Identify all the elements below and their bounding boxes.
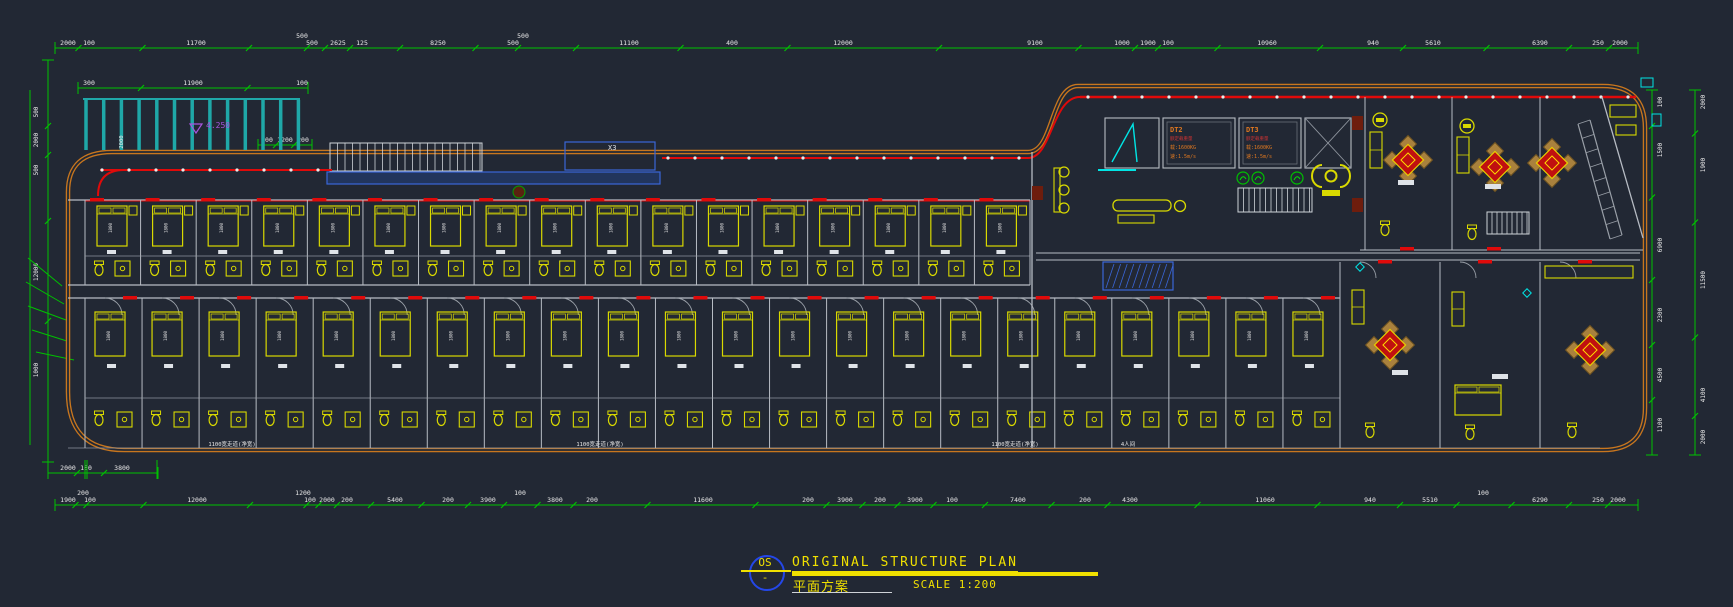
- svg-text:1800: 1800: [791, 330, 796, 341]
- svg-text:5510: 5510: [1422, 496, 1438, 504]
- svg-text:3900: 3900: [837, 496, 853, 504]
- svg-text:11500: 11500: [1700, 271, 1707, 289]
- svg-text:2000: 2000: [1610, 496, 1626, 504]
- svg-text:2625: 2625: [330, 39, 346, 47]
- svg-text:1800: 1800: [608, 222, 613, 233]
- svg-text:1800: 1800: [386, 222, 391, 233]
- corridor-labels: 1100宽走道(净宽)1100宽走道(净宽)1100宽走道(净宽)4人间: [208, 440, 1135, 448]
- svg-text:11060: 11060: [1255, 496, 1275, 504]
- svg-text:1800: 1800: [1133, 330, 1138, 341]
- svg-text:载:1600KG: 载:1600KG: [1170, 144, 1196, 151]
- svg-text:1900: 1900: [1700, 157, 1707, 172]
- svg-text:1800: 1800: [562, 330, 567, 341]
- svg-text:100: 100: [304, 496, 316, 504]
- svg-text:1800: 1800: [619, 330, 624, 341]
- stairs: [1238, 188, 1529, 234]
- svg-text:100: 100: [1162, 39, 1174, 47]
- svg-text:1800: 1800: [334, 330, 339, 341]
- svg-text:1100宽走道(净宽): 1100宽走道(净宽): [208, 440, 255, 448]
- plan-title-en: ORIGINAL STRUCTURE PLAN: [792, 555, 1018, 572]
- planter: [1103, 262, 1173, 290]
- svg-text:DT3: DT3: [1246, 126, 1259, 134]
- svg-text:1800: 1800: [676, 330, 681, 341]
- svg-text:2300: 2300: [1657, 307, 1664, 322]
- svg-text:500: 500: [507, 39, 519, 47]
- svg-text:额定载重量: 额定载重量: [1170, 135, 1193, 142]
- svg-text:1800: 1800: [106, 330, 111, 341]
- svg-text:125: 125: [356, 39, 368, 47]
- svg-text:940: 940: [1364, 496, 1376, 504]
- svg-text:1800: 1800: [164, 222, 169, 233]
- svg-text:2000: 2000: [33, 132, 40, 147]
- svg-text:100: 100: [80, 464, 92, 472]
- svg-text:1800: 1800: [962, 330, 967, 341]
- svg-text:200: 200: [802, 496, 814, 504]
- svg-text:1100宽走道(净宽): 1100宽走道(净宽): [991, 440, 1038, 448]
- svg-text:1800: 1800: [505, 330, 510, 341]
- svg-text:1800: 1800: [553, 222, 558, 233]
- svg-text:2000: 2000: [1700, 429, 1707, 444]
- svg-text:4人间: 4人间: [1121, 440, 1135, 448]
- svg-text:200: 200: [341, 496, 353, 504]
- plant-symbols: [1237, 172, 1303, 184]
- svg-text:6390: 6390: [1532, 39, 1548, 47]
- lobby-furniture: [1054, 165, 1350, 223]
- svg-text:1800: 1800: [1247, 330, 1252, 341]
- svg-text:12000: 12000: [187, 496, 207, 504]
- svg-text:100: 100: [1477, 489, 1489, 497]
- svg-text:940: 940: [1367, 39, 1379, 47]
- svg-text:3800: 3800: [547, 496, 563, 504]
- svg-text:1800: 1800: [886, 222, 891, 233]
- svg-text:500: 500: [33, 164, 40, 175]
- svg-text:1800: 1800: [1304, 330, 1309, 341]
- svg-text:2000: 2000: [60, 39, 76, 47]
- mahjong-rooms-lower: [1340, 260, 1633, 448]
- svg-text:5610: 5610: [1425, 39, 1441, 47]
- svg-text:1800: 1800: [734, 330, 739, 341]
- svg-text:400: 400: [726, 39, 738, 47]
- svg-text:100: 100: [1657, 96, 1664, 107]
- svg-text:9100: 9100: [1027, 39, 1043, 47]
- svg-text:1800: 1800: [442, 222, 447, 233]
- svg-text:1800: 1800: [497, 222, 502, 233]
- svg-text:4.250: 4.250: [206, 121, 230, 130]
- escalator: [1578, 97, 1643, 239]
- svg-text:250: 250: [1592, 39, 1604, 47]
- svg-text:100: 100: [84, 496, 96, 504]
- svg-text:1800: 1800: [330, 222, 335, 233]
- svg-text:6900: 6900: [1657, 237, 1664, 252]
- svg-text:1800: 1800: [848, 330, 853, 341]
- svg-text:1800: 1800: [1190, 330, 1195, 341]
- svg-text:500: 500: [33, 106, 40, 117]
- svg-text:6290: 6290: [1532, 496, 1548, 504]
- svg-text:1800: 1800: [1076, 330, 1081, 341]
- svg-text:1100宽走道(净宽): 1100宽走道(净宽): [576, 440, 623, 448]
- svg-text:1800: 1800: [275, 222, 280, 233]
- svg-text:5400: 5400: [387, 496, 403, 504]
- svg-text:1800: 1800: [719, 222, 724, 233]
- svg-text:1800: 1800: [108, 222, 113, 233]
- svg-text:2000: 2000: [119, 135, 125, 148]
- svg-text:1500: 1500: [1657, 142, 1664, 157]
- svg-text:速:1.5m/s: 速:1.5m/s: [1246, 154, 1272, 160]
- svg-text:11700: 11700: [186, 39, 206, 47]
- svg-text:载:1600KG: 载:1600KG: [1246, 144, 1272, 151]
- svg-text:X3: X3: [608, 144, 616, 152]
- svg-text:3900: 3900: [480, 496, 496, 504]
- svg-text:1000: 1000: [33, 362, 40, 377]
- svg-text:1800: 1800: [219, 222, 224, 233]
- svg-text:250: 250: [1592, 496, 1604, 504]
- svg-text:1800: 1800: [664, 222, 669, 233]
- svg-text:100: 100: [83, 39, 95, 47]
- svg-text:1800: 1800: [997, 222, 1002, 233]
- svg-text:1800: 1800: [1019, 330, 1024, 341]
- svg-text:500: 500: [306, 39, 318, 47]
- mahjong-rooms-upper: [1365, 97, 1636, 251]
- svg-text:100: 100: [946, 496, 958, 504]
- svg-text:3900: 3900: [907, 496, 923, 504]
- cad-viewport: 2000100117005005002625125825050050011100…: [0, 0, 1733, 607]
- svg-text:1800: 1800: [942, 222, 947, 233]
- svg-text:1800: 1800: [163, 330, 168, 341]
- right-wing: [1032, 152, 1643, 448]
- svg-text:7400: 7400: [1010, 496, 1026, 504]
- svg-text:100: 100: [296, 79, 308, 87]
- svg-text:1800: 1800: [391, 330, 396, 341]
- svg-text:4100: 4100: [1700, 387, 1707, 402]
- svg-text:1000: 1000: [1114, 39, 1130, 47]
- svg-text:额定载重量: 额定载重量: [1246, 135, 1269, 142]
- svg-text:速:1.5m/s: 速:1.5m/s: [1170, 154, 1196, 160]
- lower-guest-rooms: 1800180018001800180018001800180018001800…: [68, 296, 1600, 448]
- scale-label: SCALE 1:200: [913, 578, 997, 591]
- svg-text:1800: 1800: [277, 330, 282, 341]
- svg-text:3800: 3800: [114, 464, 130, 472]
- svg-text:11100: 11100: [619, 39, 639, 47]
- svg-text:200: 200: [586, 496, 598, 504]
- floor-plan-drawing: 2000100117005005002625125825050050011100…: [0, 0, 1733, 607]
- plan-code: OS: [749, 556, 781, 569]
- svg-text:1800: 1800: [775, 222, 780, 233]
- title-cn-underline: [792, 592, 892, 593]
- upper-guest-rooms: 1800180018001800180018001800180018001800…: [68, 198, 1030, 285]
- svg-text:1800: 1800: [220, 330, 225, 341]
- svg-text:500: 500: [517, 32, 529, 40]
- svg-text:2000: 2000: [1612, 39, 1628, 47]
- svg-text:1900: 1900: [1140, 39, 1156, 47]
- svg-text:200: 200: [874, 496, 886, 504]
- svg-text:100: 100: [514, 489, 526, 497]
- svg-text:12000: 12000: [833, 39, 853, 47]
- svg-text:8250: 8250: [430, 39, 446, 47]
- svg-text:2000: 2000: [1700, 94, 1707, 109]
- svg-text:200: 200: [442, 496, 454, 504]
- svg-text:DT2: DT2: [1170, 126, 1183, 134]
- svg-text:1900: 1900: [60, 496, 76, 504]
- svg-text:1100: 1100: [1657, 417, 1664, 432]
- plan-code-sub: -: [749, 571, 781, 584]
- svg-text:200: 200: [1079, 496, 1091, 504]
- svg-text:300: 300: [83, 79, 95, 87]
- svg-text:1800: 1800: [831, 222, 836, 233]
- svg-text:10960: 10960: [1257, 39, 1277, 47]
- svg-text:1800: 1800: [905, 330, 910, 341]
- svg-text:1800: 1800: [448, 330, 453, 341]
- svg-text:4300: 4300: [1122, 496, 1138, 504]
- svg-text:11600: 11600: [693, 496, 713, 504]
- svg-text:4500: 4500: [1657, 367, 1664, 382]
- svg-text:2000: 2000: [60, 464, 76, 472]
- cyan-accents: [1356, 78, 1661, 297]
- elevator-bank: DT2额定载重量载:1600KG速:1.5m/sDT3额定载重量载:1600KG…: [1098, 118, 1351, 170]
- svg-text:11900: 11900: [183, 79, 203, 87]
